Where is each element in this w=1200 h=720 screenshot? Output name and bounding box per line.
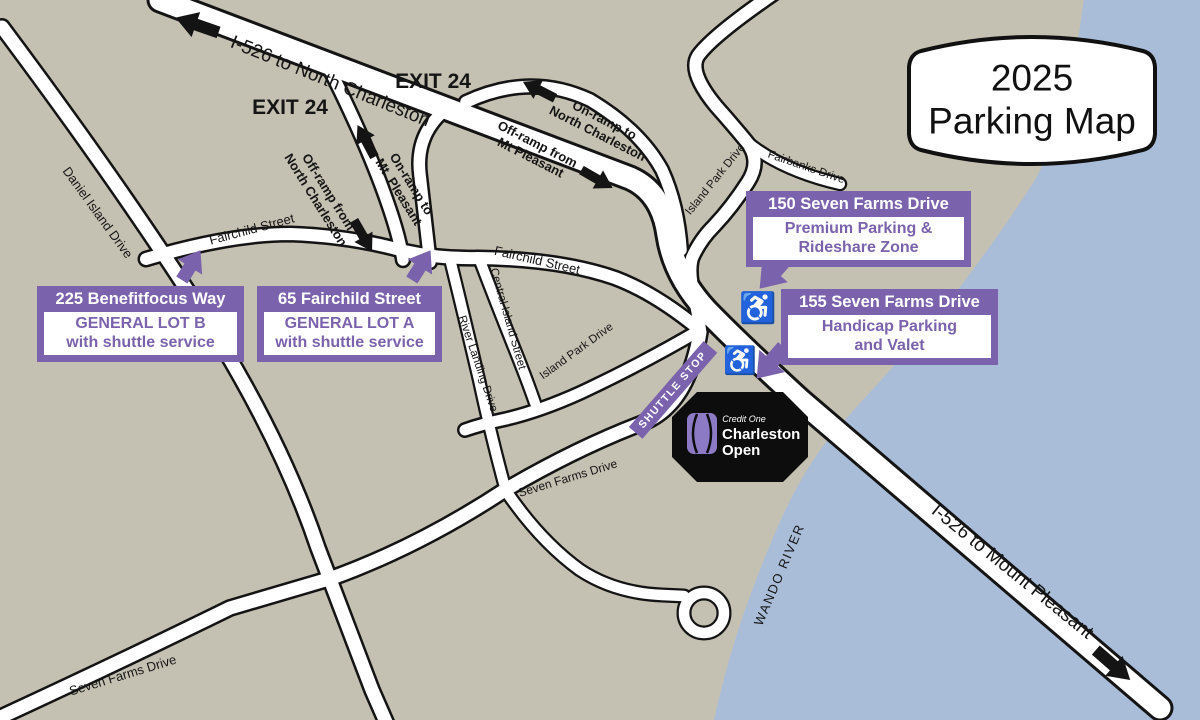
venue-logo-shield bbox=[687, 413, 717, 454]
parking-box-line1: GENERAL LOT A bbox=[268, 315, 431, 334]
parking-box-line1: GENERAL LOT B bbox=[48, 315, 233, 334]
venue-name-line2: Open bbox=[722, 443, 800, 459]
parking-box-line2: Rideshare Zone bbox=[757, 239, 960, 258]
sign-title-text: Parking Map bbox=[928, 101, 1136, 144]
sign-year-text: 2025 bbox=[991, 58, 1073, 101]
parking-box-line2: with shuttle service bbox=[48, 334, 233, 353]
parking-map: I-526 to North Charleston I-526 to Mount… bbox=[0, 0, 1200, 720]
label-exit24-west: EXIT 24 bbox=[252, 96, 328, 120]
parking-box-address: 155 Seven Farms Drive bbox=[788, 292, 991, 315]
venue-name-line1: Charleston bbox=[722, 427, 800, 443]
label-exit24-east: EXIT 24 bbox=[395, 70, 471, 94]
venue-name-text: Charleston Open bbox=[722, 427, 800, 459]
parking-box-address: 65 Fairchild Street bbox=[264, 289, 435, 312]
wheelchair-icon: ♿ bbox=[723, 345, 757, 376]
parking-box-line1: Handicap Parking bbox=[792, 318, 987, 337]
parking-box-premium: 150 Seven Farms Drive Premium Parking & … bbox=[747, 192, 970, 266]
parking-box-address: 225 Benefitfocus Way bbox=[44, 289, 237, 312]
parking-box-general-lot-b: 225 Benefitfocus Way GENERAL LOT B with … bbox=[38, 287, 243, 361]
parking-box-general-lot-a: 65 Fairchild Street GENERAL LOT A with s… bbox=[258, 287, 441, 361]
parking-box-line1: Premium Parking & bbox=[757, 220, 960, 239]
parking-box-line2: with shuttle service bbox=[268, 334, 431, 353]
wheelchair-icon: ♿ bbox=[739, 292, 776, 327]
parking-box-handicap: 155 Seven Farms Drive Handicap Parking a… bbox=[782, 290, 997, 364]
venue-brand-text: Credit One bbox=[722, 414, 766, 424]
parking-box-address: 150 Seven Farms Drive bbox=[753, 194, 964, 217]
parking-box-line2: and Valet bbox=[792, 337, 987, 356]
